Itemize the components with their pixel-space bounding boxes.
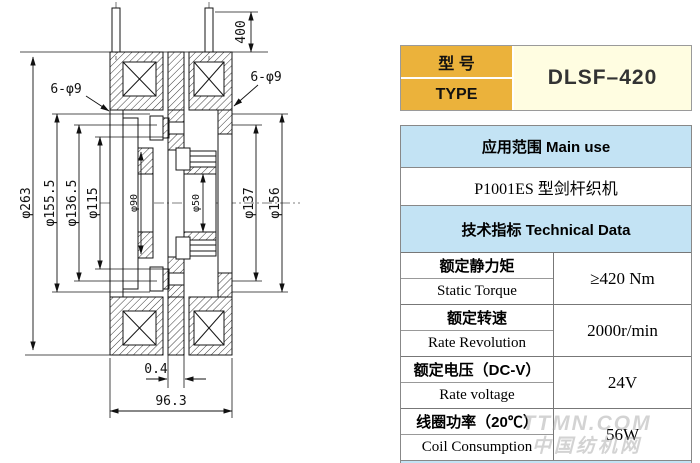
engineering-drawing: φ263 φ155.5 φ136.5 φ115 φ90 φ50 φ137 φ15… [0, 0, 398, 463]
dim-50: φ50 [191, 194, 202, 212]
spec-row-coil-consumption: 线圈功率（20℃） Coil Consumption 56W [401, 408, 691, 460]
spec-label-en: Coil Consumption [401, 435, 553, 460]
dim-gap: 0.4 [144, 362, 168, 377]
hub-bolt-upper [176, 148, 216, 170]
spec-panel: 型 号 TYPE DLSF–420 应用范围 Main use P1001ES … [400, 45, 692, 463]
spec-row-rate-voltage: 额定电压（DC-V） Rate voltage 24V [401, 356, 691, 408]
spec-label-cn: 额定静力矩 [401, 253, 553, 279]
dim-136: φ136.5 [65, 180, 80, 227]
type-table: 型 号 TYPE DLSF–420 [400, 45, 692, 111]
spec-value: ≥420 Nm [554, 253, 691, 304]
dim-263: φ263 [19, 187, 34, 218]
dim-115: φ115 [86, 187, 101, 218]
model-number: DLSF–420 [514, 46, 691, 110]
main-use-header: 应用范围 Main use [401, 126, 691, 167]
spec-row-rate-revolution: 额定转速 Rate Revolution 2000r/min [401, 304, 691, 356]
spec-label-en: Static Torque [401, 279, 553, 304]
spec-row-static-torque: 额定静力矩 Static Torque ≥420 Nm [401, 252, 691, 304]
spec-value: 2000r/min [554, 305, 691, 356]
coil-section-top-right [194, 62, 224, 96]
type-table-header: 型 号 TYPE [401, 46, 514, 110]
datasheet-page: φ263 φ155.5 φ136.5 φ115 φ90 φ50 φ137 φ15… [0, 0, 700, 463]
technical-data-header: 技术指标 Technical Data [401, 205, 691, 252]
lead-wire-left [112, 8, 120, 52]
dim-width: 96.3 [155, 394, 186, 409]
dim-155: φ155.5 [43, 180, 58, 227]
lead-wire-right [205, 8, 213, 52]
hub-bolt-lower [176, 237, 216, 259]
dim-400: 400 [234, 20, 249, 43]
dim-holes-right: 6-φ9 [250, 70, 281, 85]
clutch-body [110, 8, 232, 355]
spec-label-cn: 额定转速 [401, 305, 553, 331]
spec-label-en: Rate Revolution [401, 331, 553, 356]
dim-holes-left: 6-φ9 [50, 82, 81, 97]
dim-137: φ137 [242, 187, 257, 218]
spec-value: 56W [554, 409, 691, 460]
spec-label-cn: 线圈功率（20℃） [401, 409, 553, 435]
dim-156: φ156 [268, 187, 283, 218]
spec-label-cn: 额定电压（DC-V） [401, 357, 553, 383]
type-label-en: TYPE [401, 77, 512, 110]
coil-section-bottom-right [194, 311, 224, 345]
type-label-cn: 型 号 [401, 46, 512, 77]
dim-90: φ90 [129, 194, 140, 212]
spec-table: 应用范围 Main use P1001ES 型剑杆织机 技术指标 Technic… [400, 125, 692, 463]
coil-section-bottom-left [123, 311, 156, 345]
spec-label-en: Rate voltage [401, 383, 553, 408]
coil-section-top-left [123, 62, 156, 96]
spec-value: 24V [554, 357, 691, 408]
main-use-value: P1001ES 型剑杆织机 [401, 167, 691, 205]
